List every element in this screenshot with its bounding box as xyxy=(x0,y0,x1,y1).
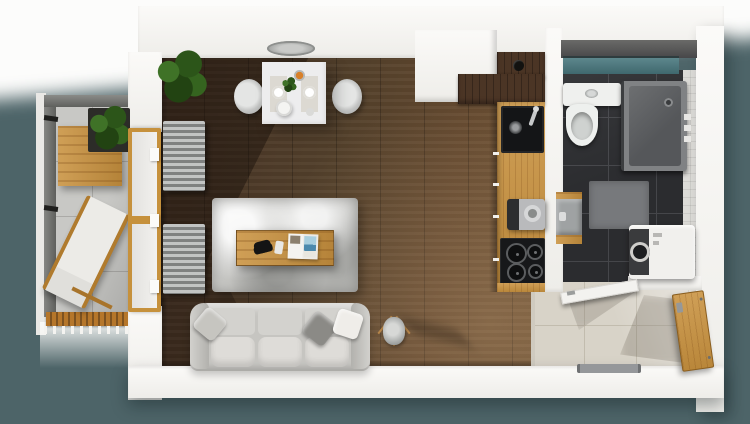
doormat xyxy=(577,364,641,373)
door-hinge xyxy=(699,297,702,300)
entry-door xyxy=(672,290,715,372)
door-hinge xyxy=(708,356,711,359)
entry-door-handle xyxy=(676,302,683,313)
floorplan-scene xyxy=(0,0,750,424)
hallway-items xyxy=(0,0,750,424)
